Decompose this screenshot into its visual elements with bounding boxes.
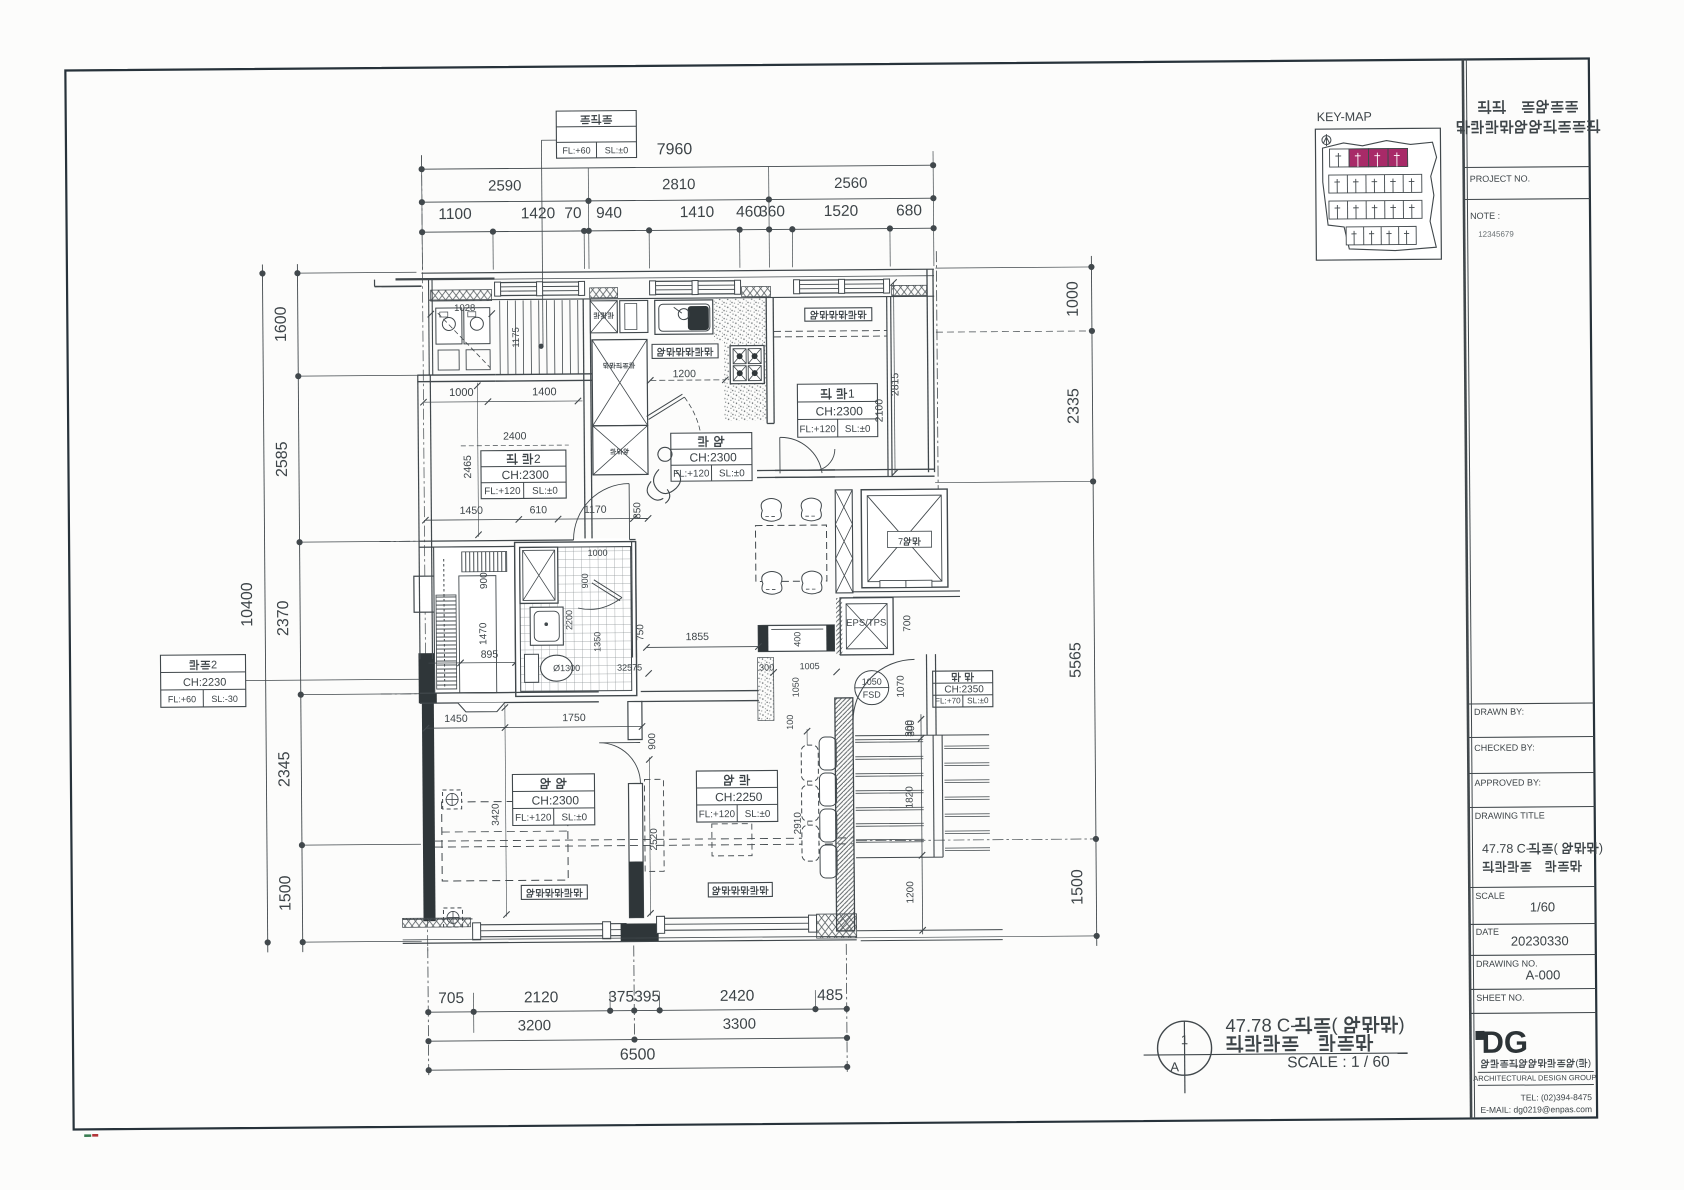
- svg-text:10400: 10400: [239, 582, 256, 627]
- svg-text:900: 900: [647, 733, 658, 750]
- svg-text:A-000: A-000: [1526, 967, 1561, 982]
- svg-text:2370: 2370: [275, 600, 292, 636]
- svg-text:1470: 1470: [478, 622, 489, 645]
- svg-text:705: 705: [438, 990, 464, 1007]
- svg-text:3200: 3200: [518, 1017, 552, 1034]
- svg-text:NOTE :: NOTE :: [1470, 211, 1500, 221]
- svg-text:): ): [1588, 1058, 1591, 1069]
- svg-text:1420: 1420: [521, 205, 556, 222]
- svg-text:FL:+60: FL:+60: [168, 694, 196, 704]
- svg-text:): ): [1398, 1014, 1404, 1035]
- svg-text:485: 485: [817, 987, 843, 1004]
- svg-text:CH:2230: CH:2230: [183, 677, 227, 689]
- svg-text:1100: 1100: [438, 206, 472, 223]
- svg-text:680: 680: [896, 202, 922, 219]
- svg-text:SL:±0: SL:±0: [745, 809, 771, 820]
- svg-text:20230330: 20230330: [1511, 933, 1569, 948]
- svg-text:SL:-30: SL:-30: [211, 694, 238, 704]
- svg-text:1450: 1450: [444, 713, 468, 725]
- svg-text:2100: 2100: [873, 399, 885, 423]
- svg-text:CH:2350: CH:2350: [944, 684, 984, 695]
- svg-text:6500: 6500: [620, 1046, 656, 1063]
- svg-text:5565: 5565: [1067, 642, 1084, 678]
- svg-text:7: 7: [898, 536, 903, 546]
- svg-text:1450: 1450: [460, 505, 484, 517]
- svg-text:1500: 1500: [1069, 869, 1086, 905]
- svg-text:610: 610: [530, 504, 548, 516]
- svg-text:SL:±0: SL:±0: [719, 468, 745, 479]
- svg-text:2200: 2200: [564, 610, 574, 630]
- svg-text:CH:2300: CH:2300: [689, 450, 737, 464]
- svg-text:1175: 1175: [511, 327, 522, 348]
- svg-text:SL:±0: SL:±0: [605, 145, 629, 155]
- svg-text:1200: 1200: [673, 368, 697, 380]
- svg-text:FL:+60: FL:+60: [562, 145, 590, 155]
- svg-text:): ): [1599, 841, 1603, 855]
- svg-text:2560: 2560: [834, 175, 868, 192]
- svg-text:SL:±0: SL:±0: [967, 696, 989, 705]
- svg-text:CH:2300: CH:2300: [501, 468, 549, 482]
- svg-text:FSD: FSD: [863, 690, 882, 700]
- svg-text:1820: 1820: [905, 786, 916, 809]
- svg-text:940: 940: [596, 205, 622, 222]
- svg-text:47.78 C-: 47.78 C-: [1482, 842, 1530, 856]
- svg-text:1028: 1028: [454, 303, 475, 314]
- svg-text:EPS/TPS: EPS/TPS: [846, 618, 886, 629]
- svg-text:1400: 1400: [532, 386, 557, 398]
- svg-text:32575: 32575: [617, 662, 642, 672]
- svg-text:CHECKED BY:: CHECKED BY:: [1474, 742, 1535, 752]
- svg-text:100: 100: [785, 715, 795, 730]
- svg-text:KEY-MAP: KEY-MAP: [1317, 110, 1372, 124]
- svg-text:2465: 2465: [462, 455, 474, 479]
- svg-text:895: 895: [481, 649, 499, 661]
- svg-text:E-MAIL: dg0219@enpas.com: E-MAIL: dg0219@enpas.com: [1480, 1104, 1592, 1115]
- svg-text:1200: 1200: [905, 881, 916, 904]
- svg-text:PROJECT NO.: PROJECT NO.: [1470, 173, 1530, 183]
- svg-text:400: 400: [792, 632, 802, 647]
- svg-text:APPROVED BY:: APPROVED BY:: [1474, 777, 1541, 788]
- svg-text:2: 2: [211, 659, 217, 671]
- svg-text:A: A: [1170, 1059, 1179, 1074]
- svg-text:300: 300: [904, 720, 915, 737]
- svg-text:1500: 1500: [277, 875, 294, 911]
- svg-text:DRAWN BY:: DRAWN BY:: [1474, 707, 1524, 717]
- svg-text:70: 70: [564, 205, 582, 222]
- svg-text:1: 1: [848, 387, 855, 401]
- svg-text:(: (: [1331, 1014, 1338, 1035]
- svg-text:SHEET NO.: SHEET NO.: [1476, 993, 1524, 1003]
- svg-text:1000: 1000: [1065, 281, 1082, 317]
- svg-text:CH:2300: CH:2300: [532, 793, 580, 807]
- svg-text:1520: 1520: [824, 203, 859, 220]
- svg-text:FL:+70: FL:+70: [935, 696, 961, 705]
- svg-text:ARCHITECTURAL DESIGN GROUP: ARCHITECTURAL DESIGN GROUP: [1473, 1073, 1596, 1083]
- svg-text:Ø1300: Ø1300: [553, 663, 580, 673]
- svg-text:1/60: 1/60: [1530, 899, 1555, 914]
- svg-text:47.78 C-: 47.78 C-: [1225, 1014, 1296, 1036]
- svg-text:DRAWING TITLE: DRAWING TITLE: [1475, 810, 1545, 821]
- svg-text:1000: 1000: [588, 548, 608, 558]
- svg-text:1170: 1170: [584, 504, 607, 516]
- svg-text:1600: 1600: [273, 306, 290, 342]
- svg-text:SL:±0: SL:±0: [561, 812, 587, 823]
- svg-text:2585: 2585: [274, 441, 291, 477]
- svg-text:FL:+120: FL:+120: [699, 809, 736, 820]
- svg-text:SL:±0: SL:±0: [532, 486, 558, 497]
- svg-text:CH:2300: CH:2300: [816, 404, 864, 418]
- svg-text:1000: 1000: [449, 387, 474, 399]
- svg-text:1855: 1855: [686, 631, 710, 643]
- svg-text:900: 900: [479, 572, 490, 589]
- svg-text:1: 1: [1181, 1032, 1188, 1047]
- svg-text:375: 375: [608, 989, 634, 1006]
- svg-text:1750: 1750: [562, 712, 586, 724]
- svg-text:SCALE: SCALE: [1475, 891, 1505, 901]
- svg-text:850: 850: [632, 502, 643, 519]
- svg-text:2335: 2335: [1065, 388, 1082, 424]
- svg-text:FL:+120: FL:+120: [484, 486, 521, 497]
- svg-text:1070: 1070: [896, 675, 907, 698]
- svg-text:1410: 1410: [680, 204, 715, 221]
- svg-text:395: 395: [634, 988, 660, 1005]
- svg-text:SL:±0: SL:±0: [845, 424, 871, 435]
- svg-text:SCALE : 1 / 60: SCALE : 1 / 60: [1287, 1054, 1390, 1072]
- svg-text:DATE: DATE: [1476, 927, 1499, 937]
- svg-text:CH:2250: CH:2250: [715, 790, 763, 804]
- svg-text:12345679: 12345679: [1478, 230, 1514, 239]
- svg-text:2400: 2400: [503, 430, 527, 442]
- svg-text:1350: 1350: [592, 632, 602, 652]
- svg-text:700: 700: [902, 615, 913, 632]
- svg-text:360: 360: [759, 203, 785, 220]
- svg-text:1005: 1005: [800, 661, 820, 671]
- svg-text:3420: 3420: [491, 803, 502, 826]
- svg-text:7960: 7960: [657, 141, 693, 158]
- svg-text:FL:+120: FL:+120: [799, 424, 836, 435]
- svg-text:300: 300: [759, 662, 774, 672]
- svg-text:2345: 2345: [276, 751, 293, 787]
- svg-text:FL:+120: FL:+120: [515, 812, 552, 823]
- svg-text:2810: 2810: [662, 176, 696, 193]
- svg-text:2590: 2590: [488, 177, 522, 194]
- svg-text:1050: 1050: [791, 677, 801, 697]
- svg-text:900: 900: [580, 573, 590, 588]
- svg-text:2420: 2420: [720, 988, 755, 1005]
- svg-text:TEL: (02)394-8475: TEL: (02)394-8475: [1521, 1092, 1593, 1103]
- svg-text:3300: 3300: [723, 1016, 757, 1033]
- svg-text:2: 2: [534, 452, 541, 466]
- svg-text:2120: 2120: [524, 989, 559, 1006]
- svg-text:DG: DG: [1481, 1025, 1528, 1060]
